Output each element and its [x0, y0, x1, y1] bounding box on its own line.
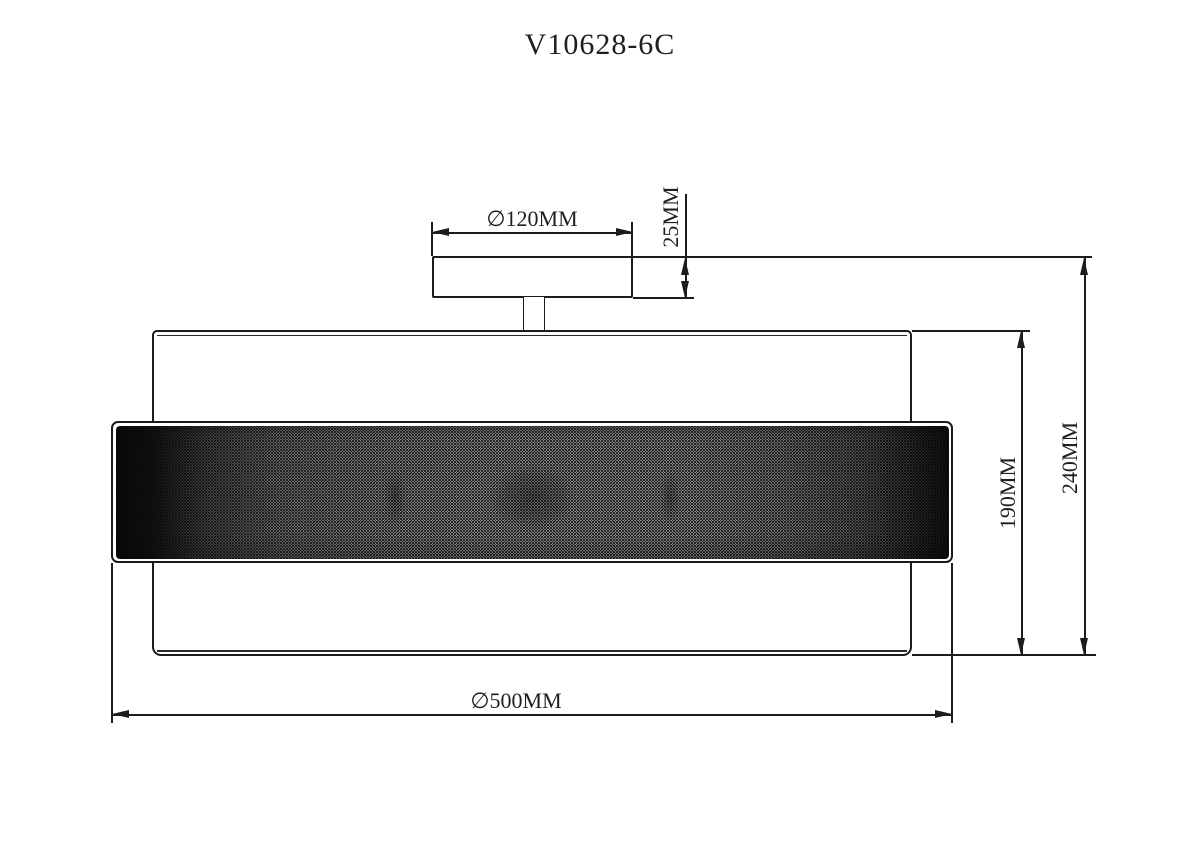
dim-label-shade-height: 190MM	[995, 457, 1021, 529]
ceiling-canopy	[432, 256, 633, 298]
dimension-line	[1021, 330, 1023, 655]
dim-label-canopy-diameter: ∅120MM	[432, 206, 632, 232]
arrowhead-up-icon	[1017, 331, 1025, 348]
drum-bottom-rim-line	[157, 650, 907, 651]
dim-label-overall-height: 240MM	[1057, 422, 1083, 494]
arrowhead-left-icon	[112, 710, 129, 718]
extension-line	[632, 256, 1092, 258]
drum-top-rim-line	[157, 335, 907, 336]
extension-line	[912, 330, 1030, 332]
drawing-title: V10628-6C	[0, 28, 1200, 62]
arrowhead-right-icon	[935, 710, 952, 718]
extension-line	[111, 563, 113, 723]
dimension-line	[112, 714, 952, 716]
dimension-line	[1084, 257, 1086, 655]
arrowhead-up-icon	[681, 258, 689, 275]
dimension-line	[432, 232, 633, 234]
technical-drawing-page: V10628-6C ∅120MM 25MM 190MM 240MM ∅500MM	[0, 0, 1200, 848]
mesh-band	[111, 421, 953, 563]
extension-line	[951, 563, 953, 723]
perforated-mesh-texture	[116, 426, 949, 559]
arrowhead-down-icon	[1017, 638, 1025, 655]
dim-label-shade-diameter: ∅500MM	[416, 688, 616, 714]
extension-line	[912, 654, 1096, 656]
dim-label-canopy-height: 25MM	[658, 186, 684, 247]
canopy-stem	[523, 297, 545, 331]
arrowhead-down-icon	[1080, 638, 1088, 655]
arrowhead-down-icon	[681, 281, 689, 298]
arrowhead-up-icon	[1080, 258, 1088, 275]
